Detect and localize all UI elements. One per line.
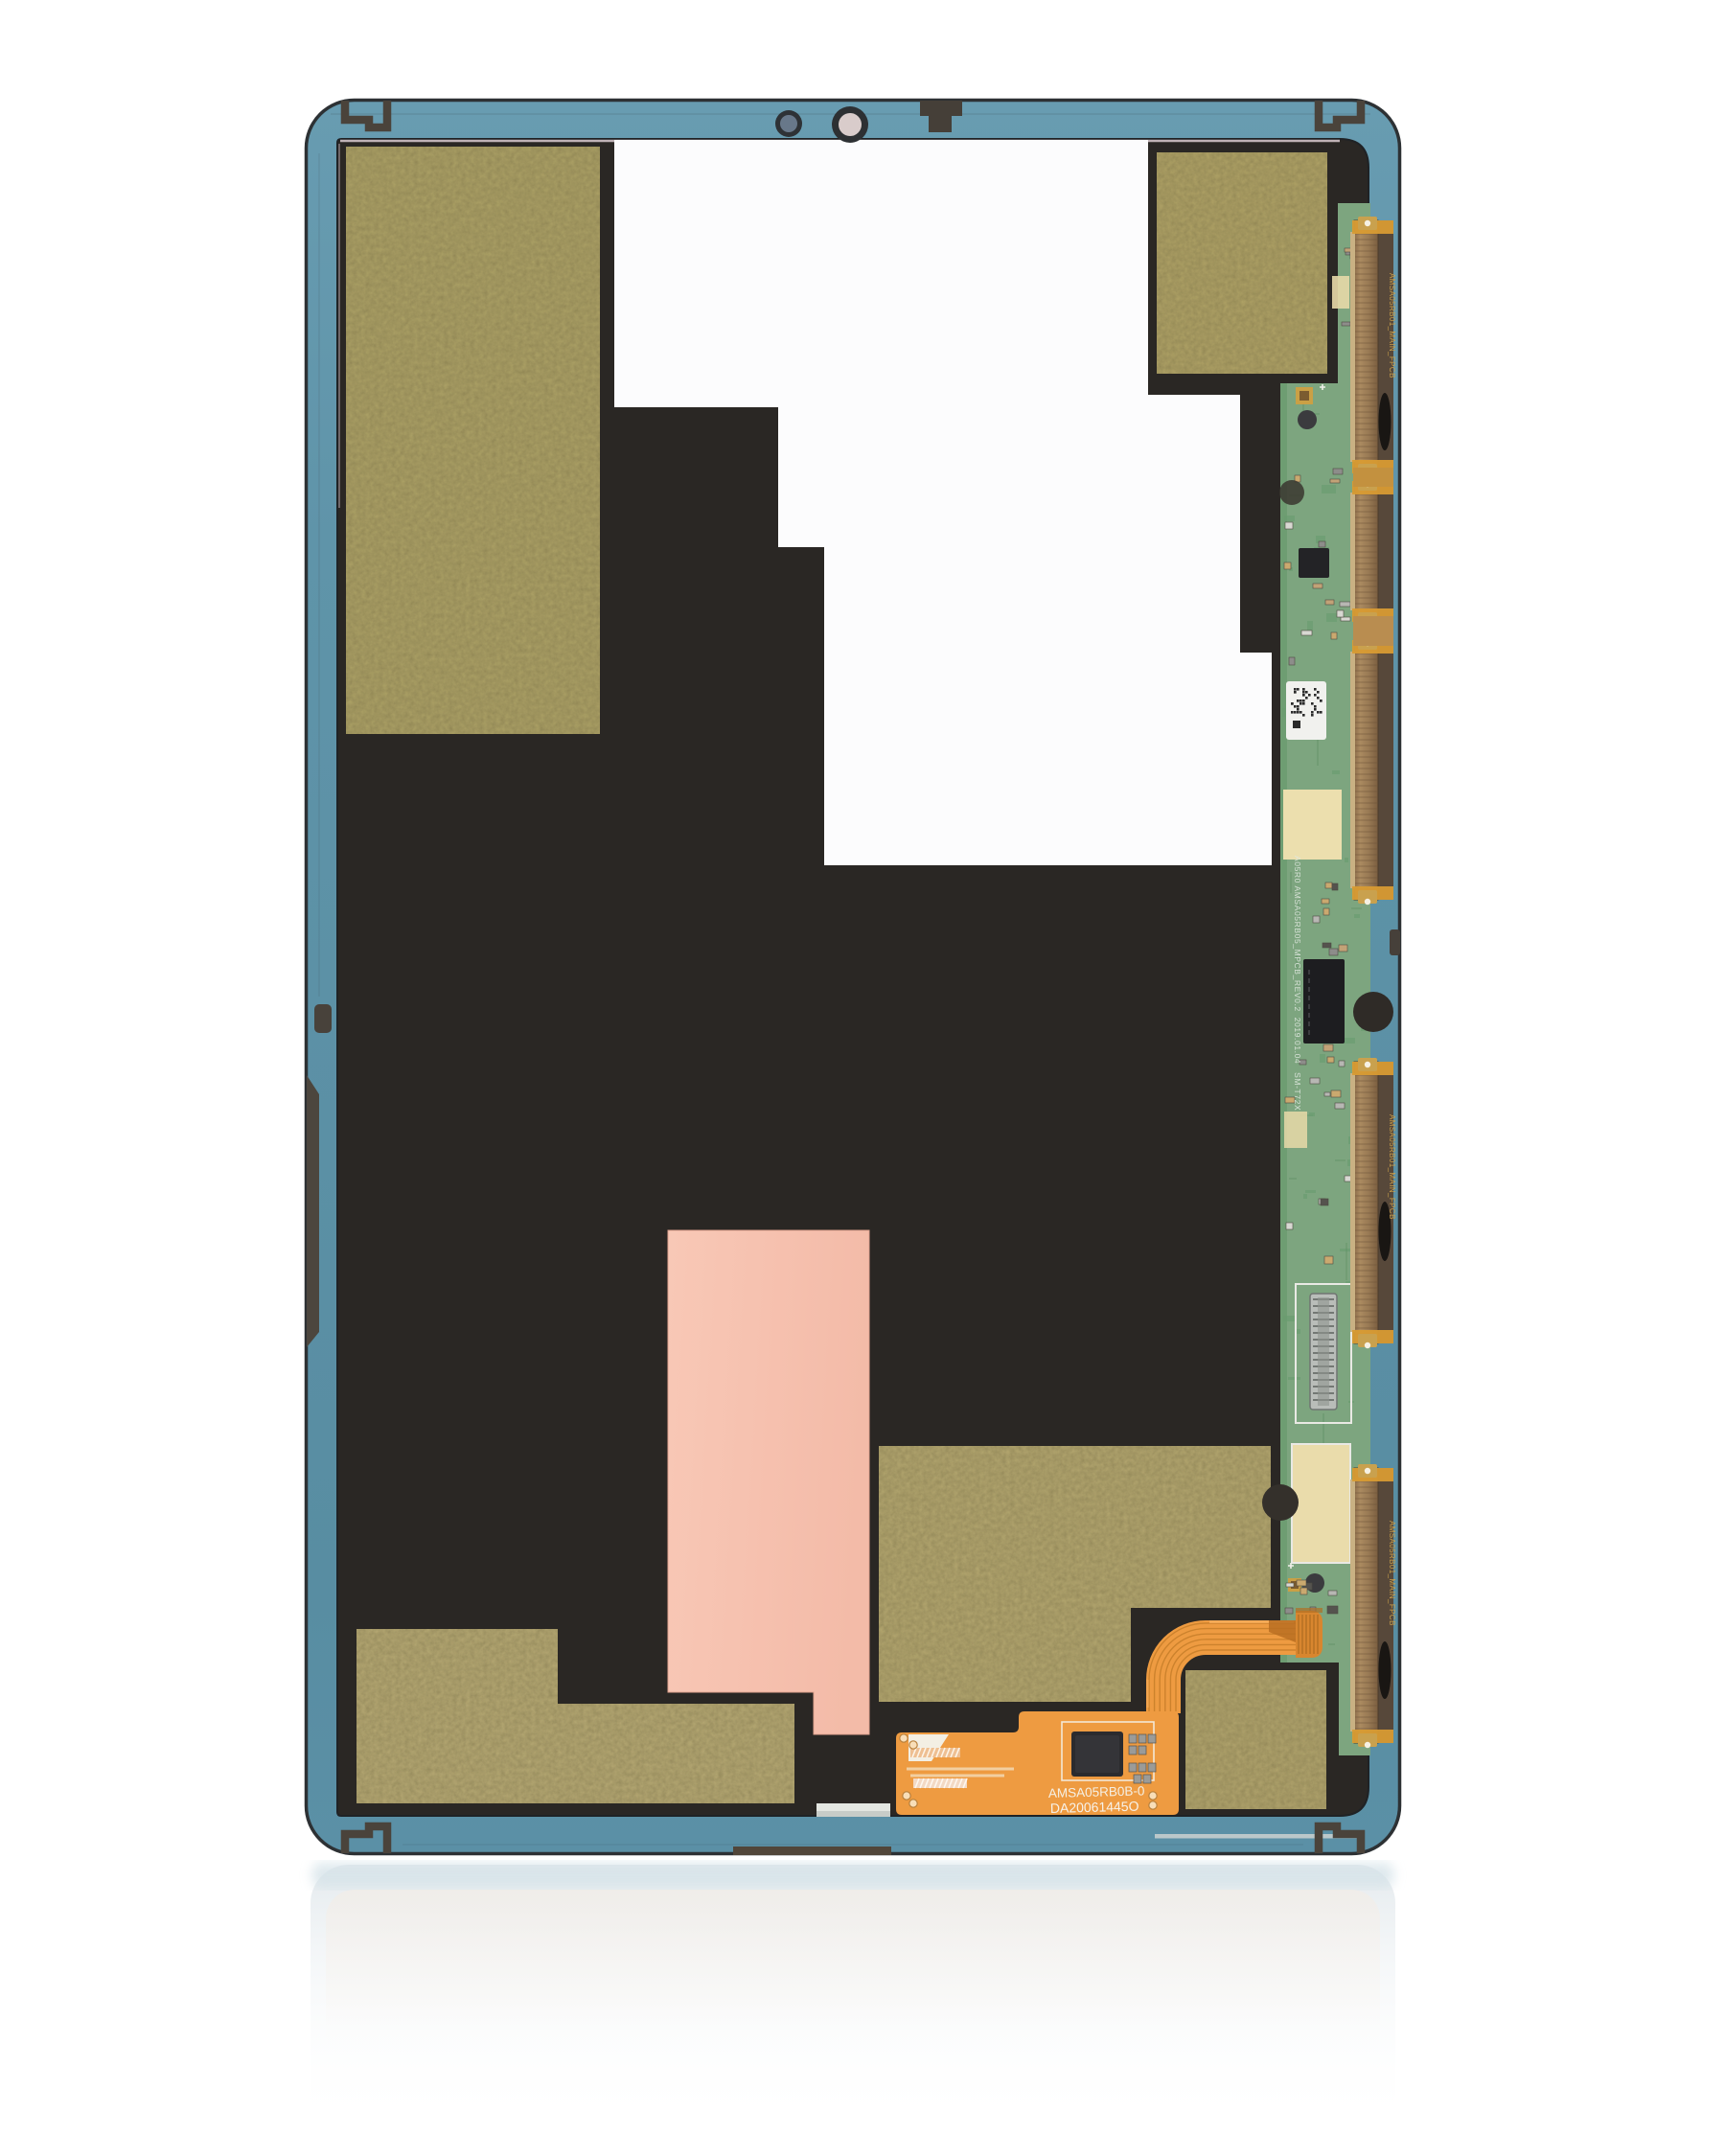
svg-text:AMSA05RB01_MAIN_FPCB: AMSA05RB01_MAIN_FPCB — [1388, 273, 1396, 378]
svg-text:DA20061445O: DA20061445O — [1050, 1799, 1139, 1816]
svg-text:AMSA05RB01_MAIN_FPCB: AMSA05RB01_MAIN_FPCB — [1388, 1521, 1396, 1626]
svg-text:AMSA05RB01_MAIN_FPCB: AMSA05RB01_MAIN_FPCB — [1388, 1114, 1396, 1220]
svg-text:A05R0 AMSA05RB05_MPCB_REV0.2: A05R0 AMSA05RB05_MPCB_REV0.2 2019.01.04 … — [1293, 856, 1302, 1111]
